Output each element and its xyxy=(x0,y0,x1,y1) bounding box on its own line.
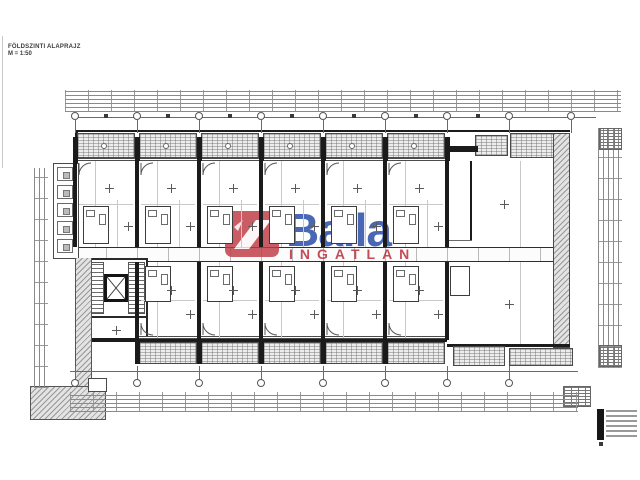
top-dimension-band xyxy=(65,90,621,112)
fixture xyxy=(210,270,219,277)
party-wall xyxy=(73,161,77,247)
wall-stub xyxy=(321,342,326,364)
axis-marker xyxy=(381,379,389,387)
window-line xyxy=(263,158,321,161)
axis-marker xyxy=(505,112,513,120)
stamp-bar xyxy=(597,409,604,440)
terrace-bottom xyxy=(139,342,197,364)
wall-stub xyxy=(197,137,202,161)
window-line xyxy=(263,336,321,339)
party-wall xyxy=(197,262,201,340)
axis-stub xyxy=(571,120,572,133)
plan-scale: M = 1:50 xyxy=(8,51,81,58)
fixture xyxy=(223,274,230,285)
axis-marker xyxy=(567,112,575,120)
unit-divider xyxy=(141,204,195,205)
axis-marker xyxy=(381,112,389,120)
unit-divider xyxy=(303,200,304,247)
plus-mark xyxy=(291,286,300,295)
window-line xyxy=(139,336,197,339)
plus-mark xyxy=(372,222,381,231)
window-line xyxy=(139,158,197,161)
party-wall xyxy=(383,161,387,247)
terrace-bottom-right xyxy=(453,346,505,366)
door-arc-icon xyxy=(264,322,278,336)
window-line xyxy=(387,158,445,161)
door-arc-icon xyxy=(140,162,154,176)
plus-mark xyxy=(372,310,381,319)
fixture xyxy=(396,270,405,277)
unit-divider xyxy=(203,204,257,205)
window-line xyxy=(201,336,259,339)
wall-stub xyxy=(445,137,450,161)
window-line xyxy=(77,158,135,161)
right-section-partition xyxy=(470,161,472,240)
axis-marker xyxy=(505,379,513,387)
plus-mark xyxy=(353,286,362,295)
axis-minor-marker xyxy=(352,114,356,118)
axis-minor-marker xyxy=(414,114,418,118)
fixture xyxy=(148,210,157,217)
axis-stub xyxy=(75,120,76,133)
stamp-text-line xyxy=(606,410,637,412)
stamp-text-line xyxy=(606,435,637,437)
plus-mark xyxy=(434,222,443,231)
unit-divider xyxy=(79,204,133,205)
floor-plan-sheet: FÖLDSZINTI ALAPRAJZ M = 1:50 xyxy=(0,0,640,480)
terrace-bottom xyxy=(387,342,445,364)
stamp-tick xyxy=(599,442,603,446)
plus-mark xyxy=(415,286,424,295)
fixture xyxy=(347,274,354,285)
terrace-bottom xyxy=(201,342,259,364)
unit-divider xyxy=(427,200,428,247)
wall-stub xyxy=(135,342,140,364)
terrace-symbol xyxy=(163,143,169,149)
elevator-shaft xyxy=(104,274,128,302)
plus-mark xyxy=(229,286,238,295)
plus-mark xyxy=(434,310,443,319)
unit-divider xyxy=(179,200,180,247)
unit-divider xyxy=(241,200,242,247)
plan-title: FÖLDSZINTI ALAPRAJZ xyxy=(8,44,81,51)
fixture xyxy=(99,214,106,225)
door-arc-icon xyxy=(78,162,92,176)
terrace-symbol xyxy=(349,143,355,149)
party-wall xyxy=(259,262,263,340)
axis-marker xyxy=(257,112,265,120)
lintel-bar xyxy=(447,146,478,152)
axis-marker xyxy=(133,379,141,387)
wall-stub xyxy=(321,137,326,161)
terrace-bottom xyxy=(263,342,321,364)
unit-divider xyxy=(389,204,443,205)
party-wall xyxy=(383,262,387,340)
window-line xyxy=(325,336,383,339)
door-arc-icon xyxy=(388,322,402,336)
fixture xyxy=(347,214,354,225)
party-wall xyxy=(259,161,263,247)
axis-marker xyxy=(319,379,327,387)
axis-minor-marker xyxy=(290,114,294,118)
plus-mark xyxy=(291,184,300,193)
axis-marker xyxy=(71,112,79,120)
right-section-partition-h xyxy=(447,240,472,241)
door-arc-icon xyxy=(388,162,402,176)
right-section-bath xyxy=(450,266,470,296)
axis-stub xyxy=(385,366,386,380)
door-arc-icon xyxy=(264,162,278,176)
unit-divider xyxy=(265,204,319,205)
axis-stub xyxy=(137,120,138,133)
terrace-symbol xyxy=(225,143,231,149)
wall-stub xyxy=(383,342,388,364)
door-arc-icon xyxy=(140,322,154,336)
wall-stub xyxy=(259,137,264,161)
storage-box xyxy=(57,221,73,235)
window-line xyxy=(201,158,259,161)
fixture xyxy=(272,210,281,217)
terrace-bottom-right-corner xyxy=(509,348,573,366)
right-dim-numbers-bottom xyxy=(599,345,622,367)
axis-marker xyxy=(443,112,451,120)
plus-mark xyxy=(248,310,257,319)
axis-stub xyxy=(385,120,386,133)
bottom-dimension-band xyxy=(70,392,578,412)
axis-minor-marker xyxy=(476,114,480,118)
right-dim-numbers-top xyxy=(599,128,622,150)
axis-marker xyxy=(195,379,203,387)
plus-mark xyxy=(186,310,195,319)
scan-edge-line xyxy=(2,36,3,168)
terrace-symbol xyxy=(411,143,417,149)
party-wall xyxy=(135,161,139,247)
storage-box xyxy=(57,167,73,181)
window-line xyxy=(387,336,445,339)
plus-mark xyxy=(167,184,176,193)
fixture xyxy=(409,274,416,285)
axis-marker xyxy=(71,379,79,387)
plus-mark xyxy=(112,326,121,335)
plus-mark xyxy=(248,222,257,231)
unit-divider xyxy=(365,200,366,247)
axis-stub xyxy=(75,366,76,380)
axis-marker xyxy=(443,379,451,387)
entry-step xyxy=(88,378,107,392)
plus-mark xyxy=(505,300,514,309)
wall-stub xyxy=(73,137,78,161)
axis-stub xyxy=(323,120,324,133)
right-wall-hatch xyxy=(553,133,570,348)
plus-mark xyxy=(310,310,319,319)
axis-minor-marker xyxy=(228,114,232,118)
axis-line-top xyxy=(72,117,596,118)
pavement-strip-vertical xyxy=(75,258,92,388)
door-arc-icon xyxy=(202,162,216,176)
party-wall xyxy=(321,161,325,247)
wall-stub xyxy=(259,342,264,364)
fixture xyxy=(285,214,292,225)
plus-mark xyxy=(124,222,133,231)
window-line xyxy=(325,158,383,161)
fixture xyxy=(210,210,219,217)
axis-marker xyxy=(319,112,327,120)
storage-box xyxy=(57,239,73,253)
wall-stub xyxy=(135,137,140,161)
terrace-top-right-small xyxy=(475,135,508,156)
axis-stub xyxy=(261,366,262,380)
plus-mark xyxy=(353,184,362,193)
right-dimension-band xyxy=(598,128,622,368)
axis-stub xyxy=(199,366,200,380)
axis-minor-marker xyxy=(104,114,108,118)
terrace-symbol xyxy=(287,143,293,149)
axis-marker xyxy=(257,379,265,387)
axis-stub xyxy=(509,366,510,380)
left-dimension-band xyxy=(34,168,48,388)
plus-mark xyxy=(186,222,195,231)
door-arc-icon xyxy=(202,322,216,336)
storage-box xyxy=(57,203,73,217)
axis-stub xyxy=(199,120,200,133)
fixture xyxy=(223,214,230,225)
fixture xyxy=(272,270,281,277)
door-arc-icon xyxy=(326,322,340,336)
plus-mark xyxy=(105,184,114,193)
axis-stub xyxy=(509,120,510,133)
fixture xyxy=(334,210,343,217)
party-wall xyxy=(445,262,449,340)
plus-mark xyxy=(229,184,238,193)
axis-stub xyxy=(447,120,448,133)
terrace-symbol xyxy=(101,143,107,149)
stamp-text-line xyxy=(606,430,637,432)
plus-mark xyxy=(310,222,319,231)
wall-stub xyxy=(383,137,388,161)
axis-line-bottom xyxy=(70,371,578,372)
stamp-text-line xyxy=(606,425,637,427)
axis-marker xyxy=(195,112,203,120)
axis-stub xyxy=(137,366,138,380)
fixture xyxy=(148,270,157,277)
unit-divider xyxy=(327,204,381,205)
axis-stub xyxy=(447,366,448,380)
axis-stub xyxy=(261,120,262,133)
fixture xyxy=(396,210,405,217)
stamp-text-line xyxy=(606,420,637,422)
plus-mark xyxy=(500,200,509,209)
party-wall xyxy=(321,262,325,340)
title-block: FÖLDSZINTI ALAPRAJZ M = 1:50 xyxy=(8,44,81,58)
terrace-bottom xyxy=(325,342,383,364)
fixture xyxy=(161,274,168,285)
axis-marker xyxy=(133,112,141,120)
stamp-text-line xyxy=(606,415,637,417)
plus-mark xyxy=(167,286,176,295)
unit-divider xyxy=(117,200,118,247)
party-wall xyxy=(197,161,201,247)
plus-mark xyxy=(415,184,424,193)
fixture xyxy=(161,214,168,225)
party-wall xyxy=(135,262,139,340)
wall-stub xyxy=(197,342,202,364)
fixture xyxy=(86,210,95,217)
door-arc-icon xyxy=(326,162,340,176)
party-wall xyxy=(445,161,449,247)
axis-stub xyxy=(323,366,324,380)
fixture xyxy=(409,214,416,225)
fixture xyxy=(285,274,292,285)
storage-box xyxy=(57,185,73,199)
fixture xyxy=(334,270,343,277)
axis-minor-marker xyxy=(166,114,170,118)
